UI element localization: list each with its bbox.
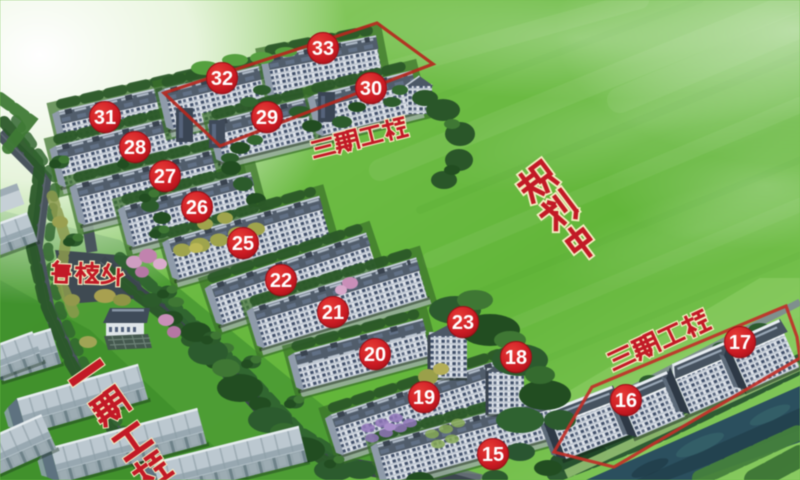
svg-text:29: 29 xyxy=(256,107,278,129)
svg-text:17: 17 xyxy=(729,332,751,354)
svg-text:21: 21 xyxy=(322,302,344,324)
svg-text:15: 15 xyxy=(482,444,504,466)
svg-text:28: 28 xyxy=(124,137,146,159)
svg-text:25: 25 xyxy=(232,233,254,255)
svg-text:23: 23 xyxy=(452,312,474,334)
svg-text:31: 31 xyxy=(94,107,116,129)
svg-text:16: 16 xyxy=(615,390,637,412)
svg-text:30: 30 xyxy=(360,78,382,100)
svg-text:22: 22 xyxy=(270,270,292,292)
svg-text:18: 18 xyxy=(505,347,527,369)
svg-text:20: 20 xyxy=(364,344,386,366)
svg-text:32: 32 xyxy=(211,68,233,90)
svg-text:33: 33 xyxy=(312,38,334,60)
svg-text:19: 19 xyxy=(413,387,435,409)
svg-text:27: 27 xyxy=(154,166,176,188)
svg-text:26: 26 xyxy=(186,197,208,219)
